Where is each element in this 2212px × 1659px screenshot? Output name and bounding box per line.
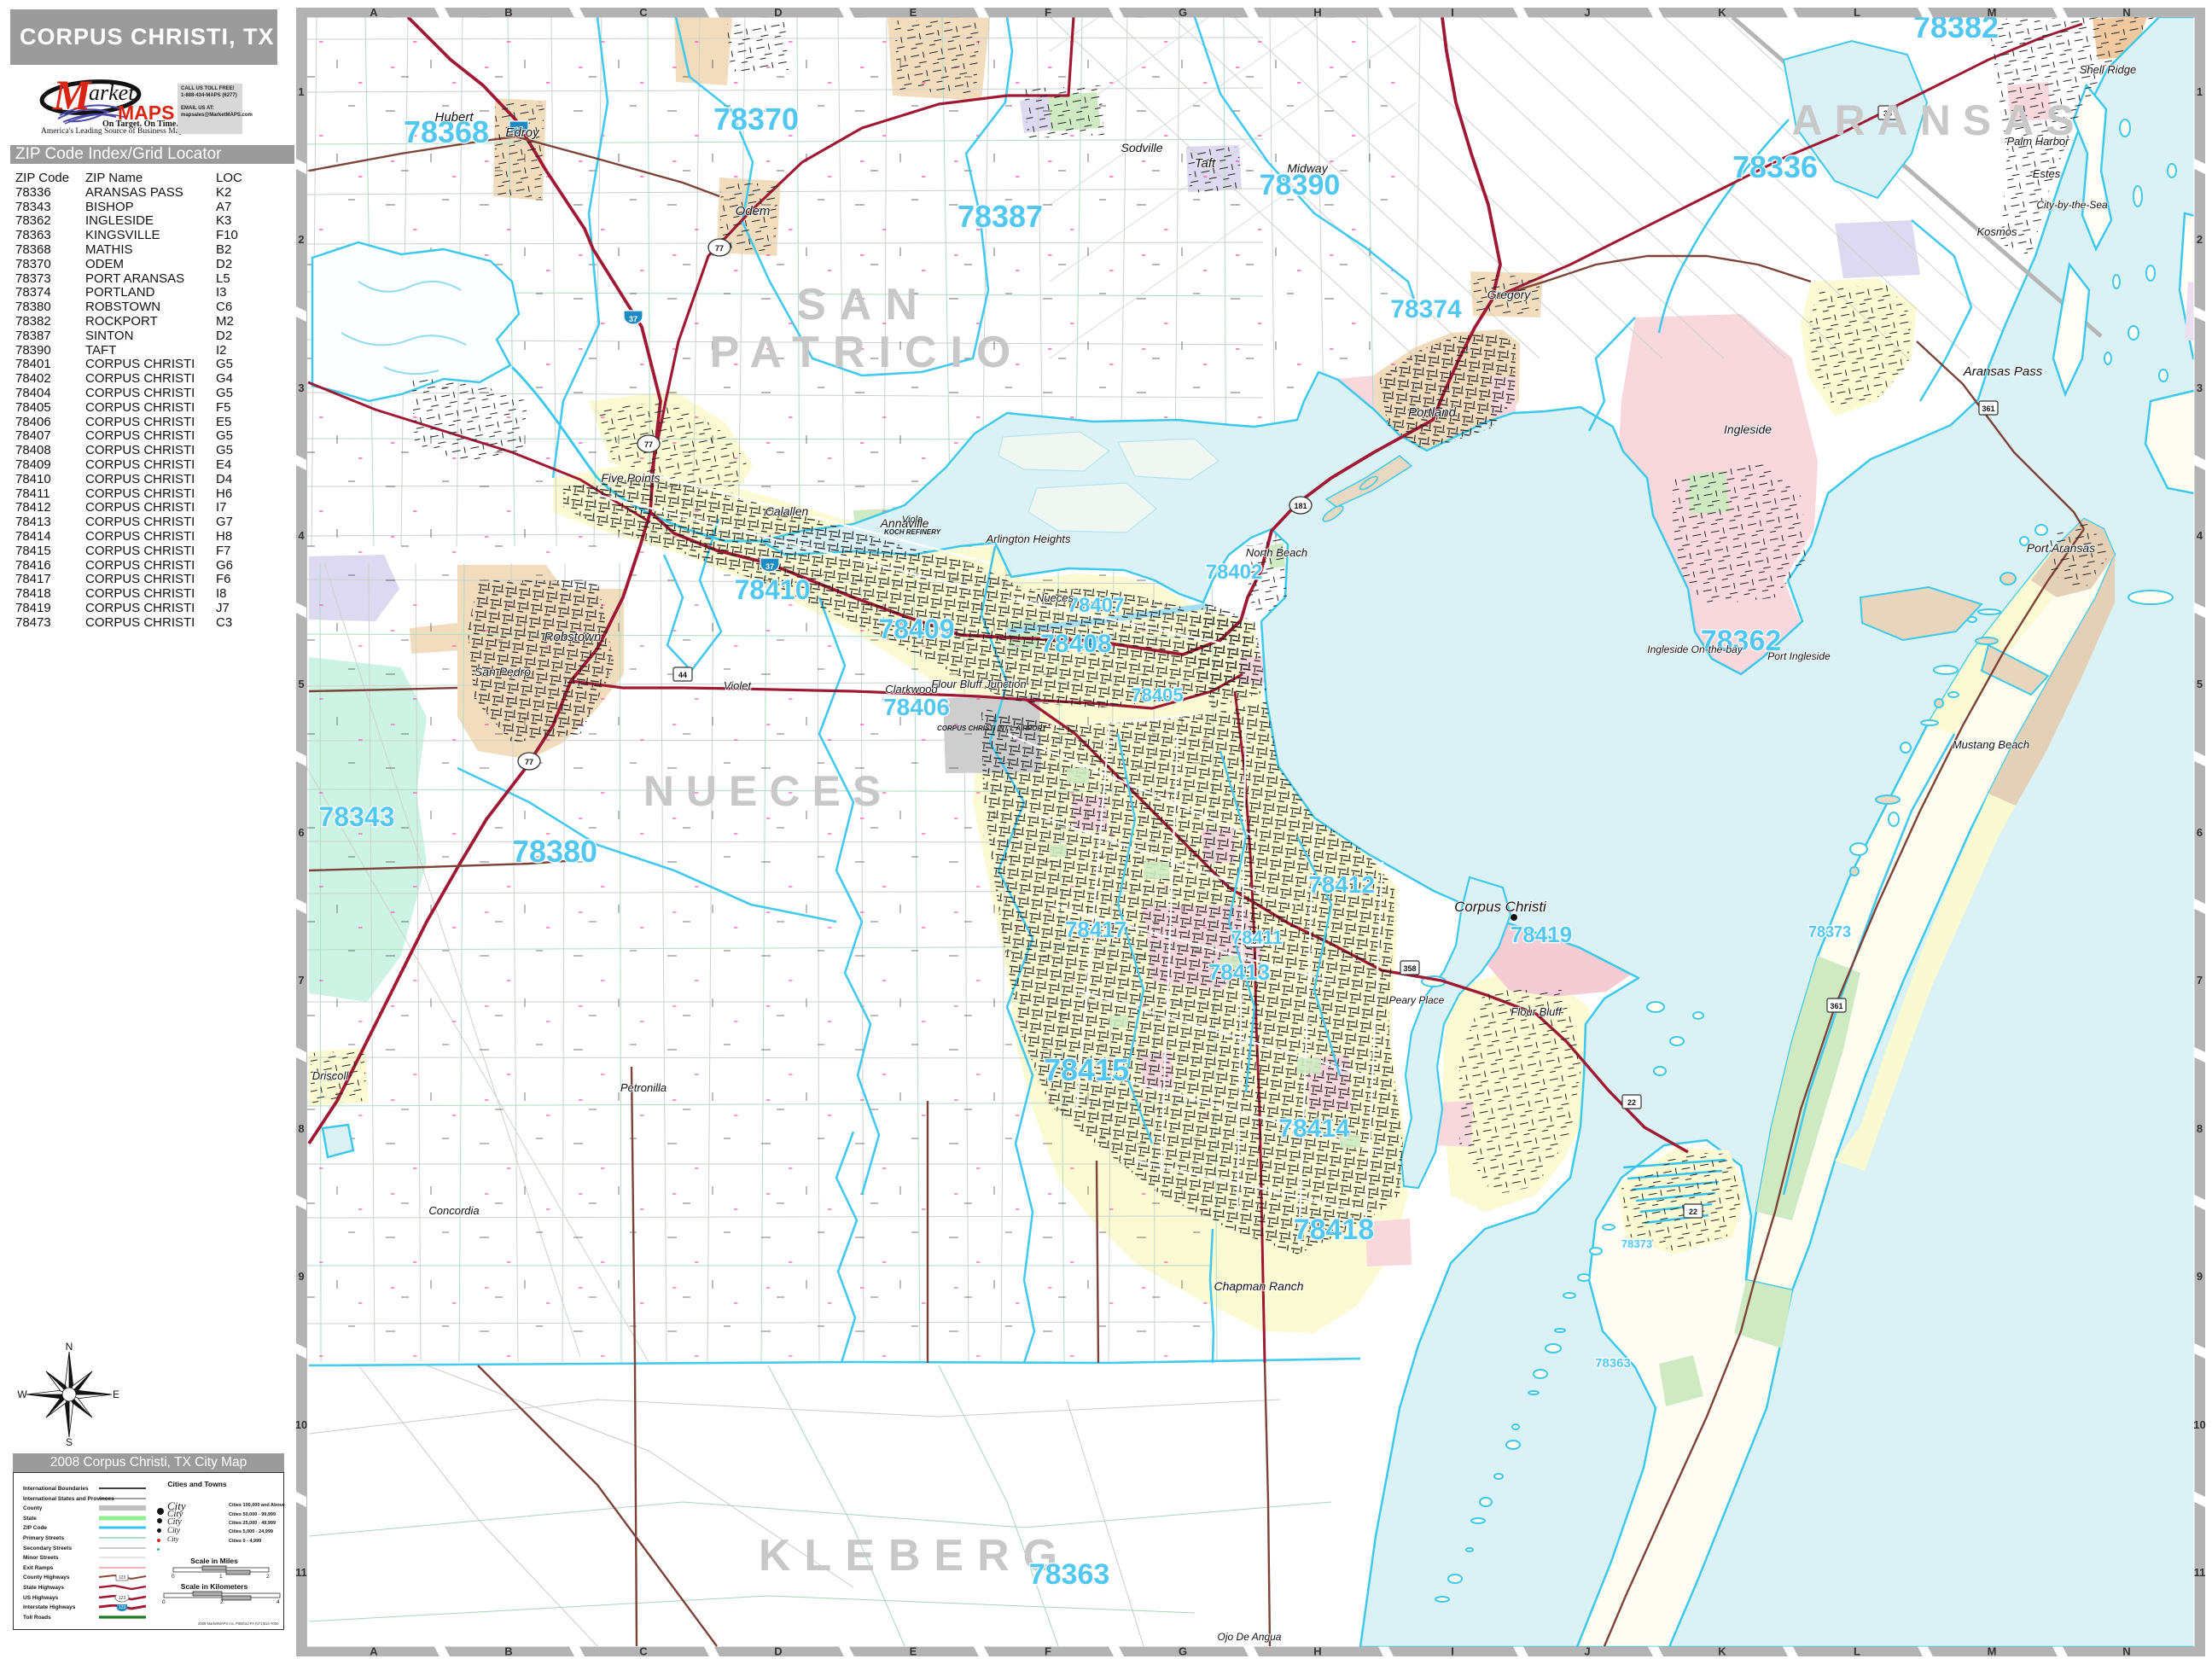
svg-text:Palm Harbor: Palm Harbor [2007, 135, 2070, 148]
svg-text:78415: 78415 [1044, 1052, 1129, 1087]
svg-text:1: 1 [298, 85, 304, 98]
svg-text:78387: 78387 [958, 199, 1043, 234]
svg-text:Concordia: Concordia [428, 1204, 479, 1217]
svg-text:123: 123 [119, 1575, 126, 1580]
svg-text:Flour Bluff Junction: Flour Bluff Junction [931, 678, 1026, 690]
svg-text:78363: 78363 [1595, 1356, 1631, 1371]
svg-text:F: F [1045, 1645, 1051, 1658]
svg-text:Violet: Violet [724, 679, 753, 692]
svg-text:B: B [504, 1645, 512, 1658]
svg-text:F: F [1045, 6, 1051, 19]
svg-text:78373: 78373 [1808, 923, 1851, 940]
svg-text:KLEBERG: KLEBERG [759, 1531, 1071, 1580]
svg-text:78405: 78405 [1131, 684, 1183, 706]
svg-text:Corpus Christi: Corpus Christi [1454, 899, 1547, 915]
svg-text:L: L [1854, 6, 1860, 19]
svg-text:M: M [1988, 6, 1997, 19]
svg-text:37: 37 [629, 315, 637, 323]
svg-text:San Pedro: San Pedro [474, 665, 531, 678]
svg-text:Taft: Taft [1195, 156, 1216, 171]
svg-text:78374: 78374 [1390, 295, 1462, 323]
svg-text:2: 2 [2197, 233, 2203, 246]
svg-text:SAN: SAN [796, 280, 931, 329]
svg-text:78402: 78402 [1206, 561, 1263, 584]
svg-text:78336: 78336 [1732, 149, 1818, 184]
svg-text:1: 1 [2197, 85, 2203, 98]
svg-text:9: 9 [298, 1270, 304, 1283]
svg-text:Shell Ridge: Shell Ridge [2080, 63, 2137, 76]
svg-text:22: 22 [1689, 1208, 1697, 1216]
svg-text:Kosmos: Kosmos [1977, 225, 2017, 238]
svg-text:G: G [1179, 1645, 1187, 1658]
svg-text:Midway: Midway [1287, 161, 1328, 175]
svg-text:Viola: Viola [902, 515, 923, 525]
svg-text:2: 2 [220, 1599, 224, 1604]
svg-text:2: 2 [266, 1574, 270, 1579]
svg-text:8: 8 [298, 1122, 304, 1135]
svg-text:44: 44 [678, 671, 687, 679]
svg-text:77: 77 [715, 244, 724, 253]
svg-text:N: N [66, 1342, 73, 1353]
svg-text:KOCH REFINERY: KOCH REFINERY [884, 528, 941, 536]
svg-text:CORPUS CHRISTI INT'L AIRPORT: CORPUS CHRISTI INT'L AIRPORT [937, 725, 1047, 732]
svg-text:123: 123 [119, 1596, 126, 1601]
svg-text:78407: 78407 [1068, 594, 1125, 617]
svg-text:E: E [910, 6, 917, 19]
svg-text:78380: 78380 [512, 834, 597, 869]
svg-text:City-by-the-Sea: City-by-the-Sea [2036, 199, 2108, 211]
svg-text:Edroy: Edroy [505, 125, 540, 140]
svg-text:361: 361 [1830, 1002, 1842, 1010]
svg-text:K: K [1718, 6, 1726, 19]
svg-text:3: 3 [298, 381, 304, 394]
svg-text:E: E [910, 1645, 917, 1658]
svg-text:78417: 78417 [1065, 917, 1126, 942]
svg-text:78412: 78412 [1308, 871, 1375, 898]
svg-text:78373: 78373 [1621, 1237, 1652, 1250]
svg-text:G: G [1179, 6, 1187, 19]
svg-text:Robstown: Robstown [544, 630, 602, 644]
svg-text:9: 9 [2197, 1270, 2203, 1283]
svg-text:A: A [370, 6, 378, 19]
svg-text:Ingleside: Ingleside [1724, 422, 1772, 436]
svg-text:S: S [66, 1436, 73, 1447]
svg-text:PATRICIO: PATRICIO [710, 328, 1025, 377]
svg-text:Five Points: Five Points [601, 471, 660, 485]
svg-text:181: 181 [1294, 502, 1307, 510]
svg-text:10: 10 [295, 1418, 307, 1431]
svg-text:77: 77 [525, 758, 533, 766]
svg-text:4: 4 [2197, 529, 2203, 542]
svg-text:358: 358 [1403, 964, 1416, 973]
svg-text:361: 361 [1982, 405, 1994, 413]
svg-text:B: B [504, 6, 512, 19]
svg-text:D: D [774, 1645, 782, 1658]
svg-text:N: N [2122, 1645, 2130, 1658]
svg-text:J: J [1584, 1645, 1590, 1658]
svg-text:3: 3 [2197, 381, 2203, 394]
svg-text:Peary Place: Peary Place [1389, 994, 1445, 1006]
svg-text:H: H [1313, 1645, 1321, 1658]
svg-text:L: L [1854, 1645, 1860, 1658]
svg-text:11: 11 [2194, 1566, 2206, 1579]
svg-text:K: K [1718, 1645, 1726, 1658]
svg-text:78343: 78343 [319, 801, 395, 832]
svg-text:Hubert: Hubert [434, 110, 474, 125]
svg-text:NUECES: NUECES [643, 767, 893, 815]
svg-text:5: 5 [298, 678, 304, 690]
svg-text:78363: 78363 [1029, 1558, 1110, 1591]
svg-text:J: J [1584, 6, 1590, 19]
svg-text:78418: 78418 [1294, 1214, 1375, 1246]
svg-text:H: H [1313, 6, 1321, 19]
svg-text:0: 0 [162, 1599, 166, 1604]
svg-text:78411: 78411 [1231, 927, 1283, 948]
svg-text:Driscoll: Driscoll [312, 1069, 350, 1082]
svg-text:C: C [639, 6, 648, 19]
svg-text:6: 6 [298, 826, 304, 839]
svg-text:78413: 78413 [1208, 959, 1270, 985]
svg-text:78414: 78414 [1278, 1115, 1350, 1143]
svg-text:22: 22 [1627, 1098, 1636, 1107]
svg-text:78370: 78370 [713, 102, 799, 137]
svg-text:Portland: Portland [1408, 405, 1457, 420]
svg-text:Clarkwood: Clarkwood [885, 683, 938, 696]
svg-text:123: 123 [119, 1605, 126, 1610]
svg-text:E: E [113, 1388, 119, 1400]
svg-text:C: C [639, 1645, 648, 1658]
svg-text:D: D [774, 6, 782, 19]
svg-text:7: 7 [2197, 974, 2203, 987]
svg-text:Flour Bluff: Flour Bluff [1511, 1005, 1563, 1018]
svg-text:M: M [1988, 1645, 1997, 1658]
svg-text:Gregory: Gregory [1487, 288, 1532, 301]
svg-text:Odem: Odem [736, 204, 771, 218]
svg-text:Port Aransas: Port Aransas [2027, 541, 2095, 555]
svg-text:Aransas Pass: Aransas Pass [1963, 364, 2043, 379]
svg-text:I: I [1451, 6, 1454, 19]
svg-text:11: 11 [295, 1566, 307, 1579]
svg-text:4: 4 [276, 1599, 280, 1604]
svg-text:M: M [52, 73, 92, 119]
svg-text:78408: 78408 [1040, 630, 1111, 658]
svg-text:5: 5 [2197, 678, 2203, 690]
svg-text:North Beach: North Beach [1246, 546, 1307, 559]
svg-text:8: 8 [2197, 1122, 2203, 1135]
svg-text:77: 77 [644, 440, 653, 449]
svg-text:N: N [2122, 6, 2130, 19]
svg-text:78410: 78410 [735, 574, 811, 605]
svg-text:Calallen: Calallen [765, 504, 809, 518]
svg-text:78409: 78409 [879, 614, 955, 644]
svg-text:A: A [370, 1645, 378, 1658]
svg-text:1: 1 [219, 1574, 223, 1579]
svg-text:I: I [1451, 1645, 1454, 1658]
svg-text:2: 2 [298, 233, 304, 246]
svg-text:Ojo De Angua: Ojo De Angua [1218, 1631, 1282, 1643]
svg-text:Ingleside On-the-bay: Ingleside On-the-bay [1647, 643, 1743, 655]
svg-text:Port Ingleside: Port Ingleside [1767, 650, 1831, 662]
svg-text:4: 4 [298, 529, 305, 542]
svg-text:Mustang Beach: Mustang Beach [1953, 738, 2029, 751]
svg-text:Arlington Heights: Arlington Heights [986, 533, 1071, 545]
svg-text:78419: 78419 [1511, 922, 1572, 947]
svg-text:Estes: Estes [2033, 167, 2061, 180]
svg-text:10: 10 [2193, 1418, 2205, 1431]
svg-text:0: 0 [172, 1574, 175, 1579]
svg-text:Petronilla: Petronilla [620, 1081, 667, 1094]
svg-text:78406: 78406 [883, 694, 950, 720]
svg-text:Nueces: Nueces [1036, 591, 1074, 604]
svg-text:37: 37 [765, 562, 774, 571]
svg-text:Chapman Ranch: Chapman Ranch [1214, 1279, 1303, 1293]
svg-text:6: 6 [2197, 826, 2203, 839]
svg-text:Sodville: Sodville [1121, 141, 1162, 154]
svg-text:7: 7 [298, 974, 304, 987]
svg-text:W: W [17, 1388, 27, 1400]
